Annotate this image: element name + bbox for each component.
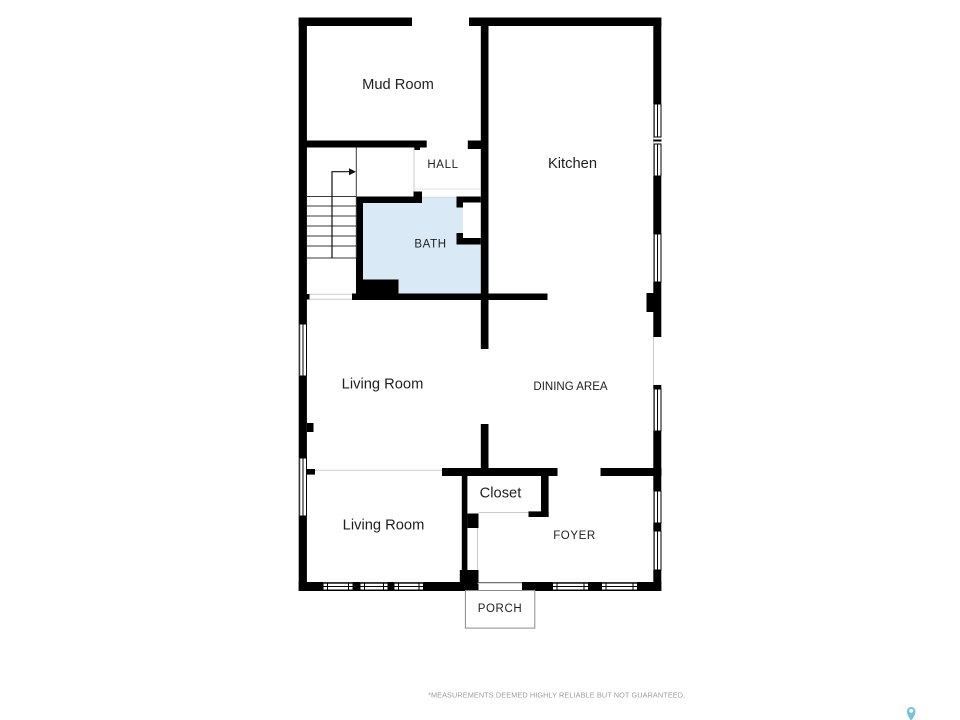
svg-text:Living Room: Living Room [342,377,424,393]
svg-text:HALL: HALL [427,159,458,171]
svg-text:Living Room: Living Room [343,518,425,534]
svg-text:FOYER: FOYER [553,530,596,542]
svg-text:DINING AREA: DINING AREA [533,381,607,393]
svg-text:Closet: Closet [480,486,522,502]
svg-text:BATH: BATH [414,239,446,251]
svg-text:Mud Room: Mud Room [362,77,434,93]
svg-text:Kitchen: Kitchen [548,156,597,172]
svg-text:PORCH: PORCH [478,603,523,615]
svg-text:*MEASUREMENTS DEEMED HIGHLY RE: *MEASUREMENTS DEEMED HIGHLY RELIABLE BUT… [428,691,685,700]
